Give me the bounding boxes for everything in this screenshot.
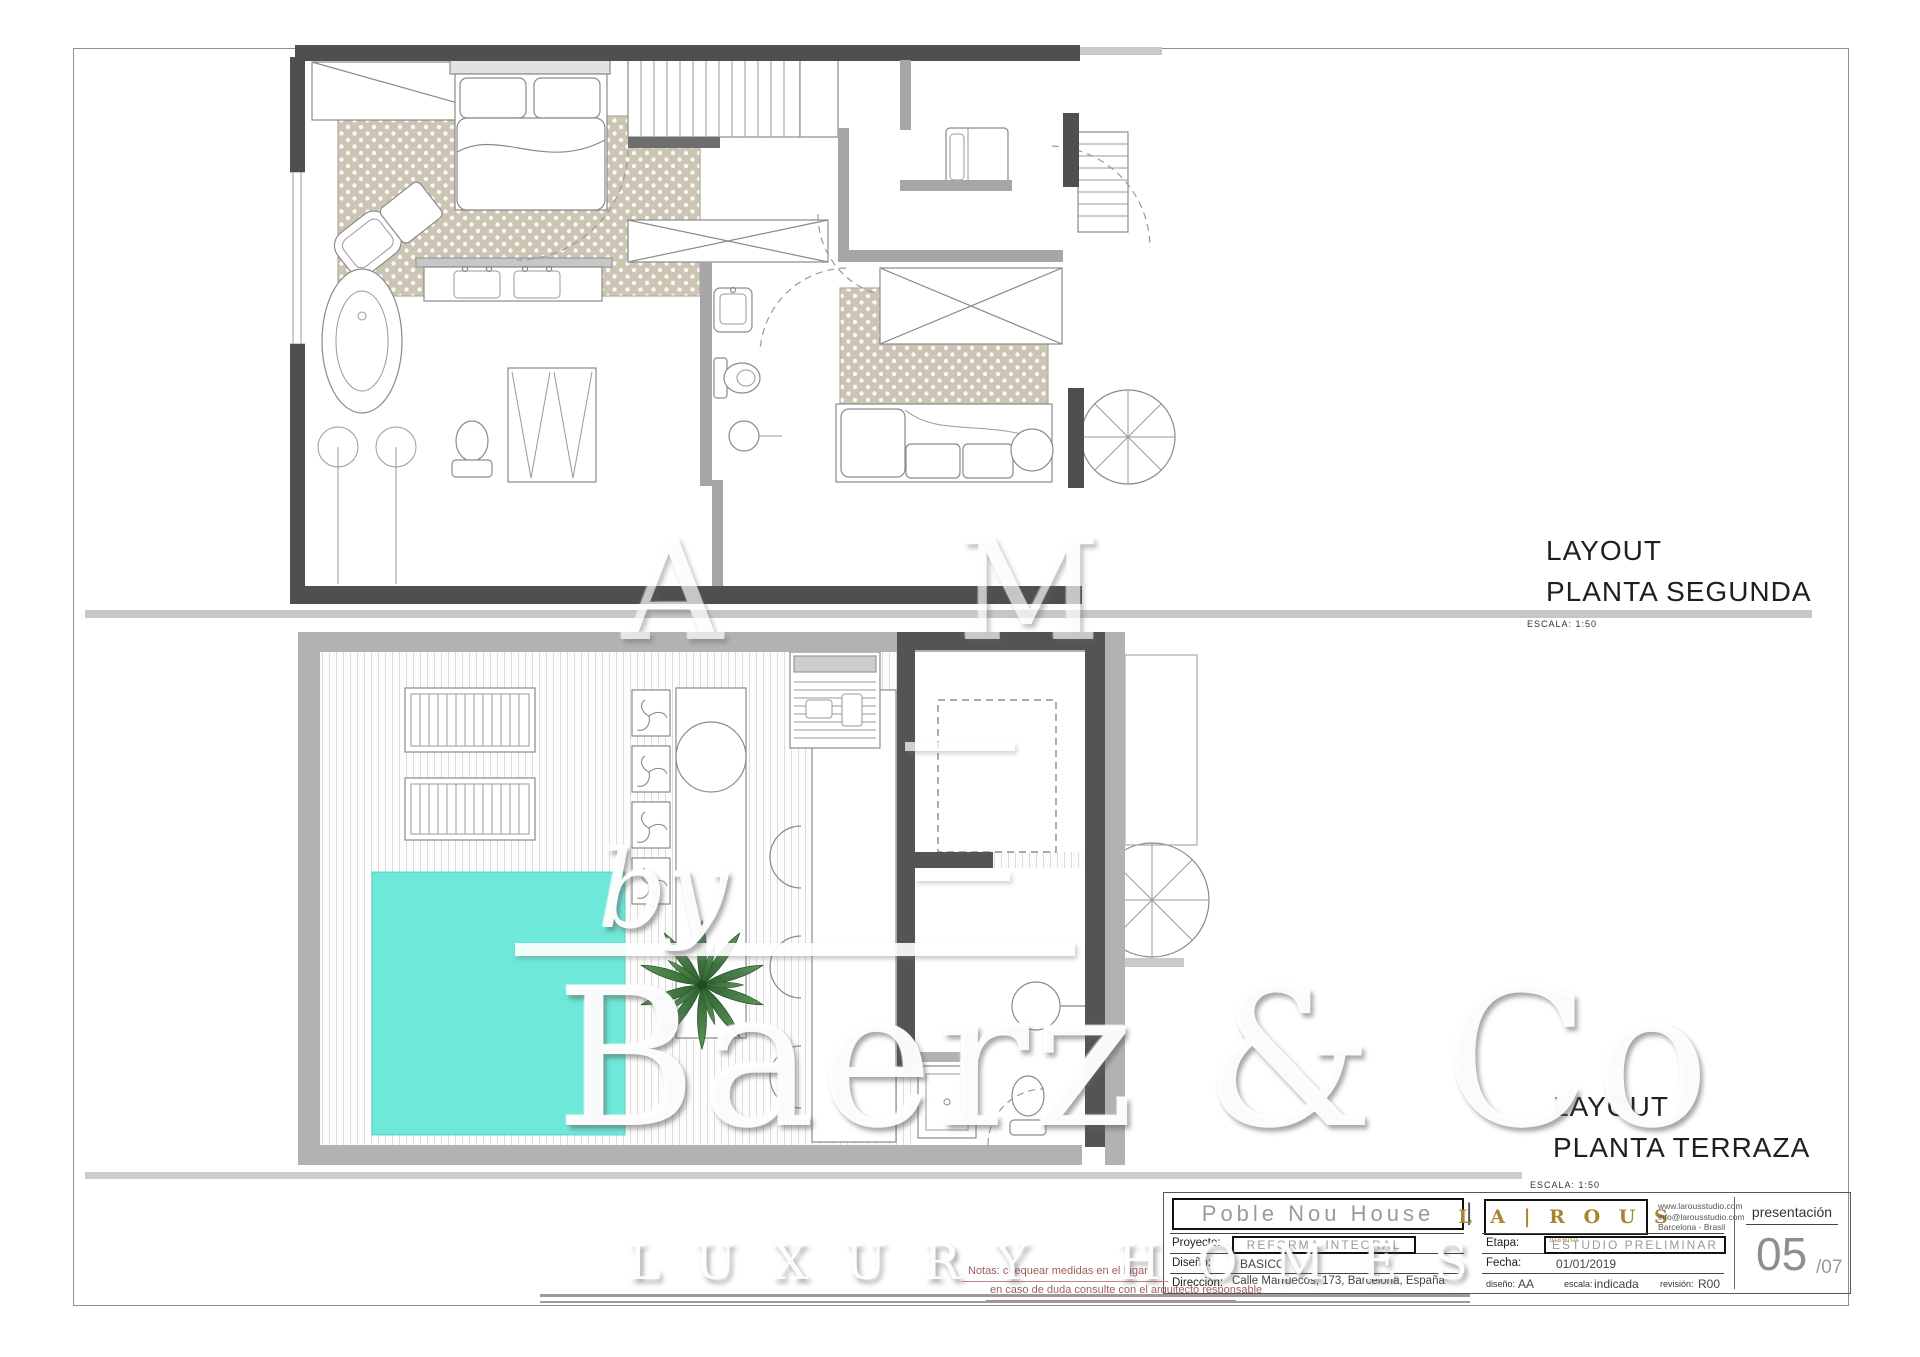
meta-value: AA [1518, 1277, 1534, 1291]
field-label: Proyecto: [1172, 1237, 1221, 1249]
plan-divider-bar [85, 1172, 1522, 1179]
meta-value: indicada [1594, 1277, 1639, 1291]
field-label: Diseño: [1172, 1257, 1211, 1269]
project-name: Poble Nou House [1172, 1198, 1464, 1230]
title-block-separator [1734, 1197, 1735, 1289]
field-label: Fecha: [1486, 1257, 1521, 1269]
toilet [452, 421, 492, 477]
sun-lounger [405, 688, 535, 752]
daybed [946, 128, 1008, 186]
watermark-bar [915, 872, 1010, 881]
master-bed [450, 60, 610, 210]
meta-label: diseño: [1486, 1279, 1515, 1289]
meta-label: revisión: [1660, 1279, 1694, 1289]
contact-city: Barcelona - Brasil [1658, 1222, 1745, 1233]
watermark-rule [540, 1294, 1470, 1297]
bathtub [322, 269, 402, 413]
watermark-bar [905, 742, 1015, 751]
ladder-stair [1078, 132, 1128, 232]
wardrobe [508, 368, 596, 482]
spiral-staircase [1081, 390, 1175, 484]
window [290, 172, 305, 344]
plan-segunda-drawing [290, 45, 1175, 604]
field-label: Etapa: [1486, 1237, 1519, 1249]
sheet-type: presentación [1742, 1204, 1842, 1220]
meta-label: escala: [1564, 1279, 1593, 1289]
field-value-proyecto: REFORMA INTEGRAL [1232, 1236, 1416, 1254]
pool [372, 872, 625, 1135]
field-value-diseno: BASICO [1240, 1257, 1285, 1271]
plan-subtitle: PLANTA TERRAZA [1553, 1127, 1810, 1168]
plan-segunda-label: LAYOUT PLANTA SEGUNDA [1546, 530, 1812, 612]
plan-terraza-scale: ESCALA: 1:50 [1530, 1180, 1600, 1190]
meta-value: R00 [1698, 1277, 1720, 1291]
plan-segunda-scale: ESCALA: 1:50 [1527, 619, 1597, 629]
sheet-total: /07 [1816, 1257, 1842, 1279]
field-value-direccion: Calle Marruecos, 173, Barcelona, España [1232, 1275, 1445, 1287]
plan-subtitle: PLANTA SEGUNDA [1546, 571, 1812, 612]
plan-terraza-drawing [298, 632, 1209, 1165]
plan-title: LAYOUT [1546, 530, 1812, 571]
contact-email: info@larousstudio.com [1658, 1212, 1745, 1223]
watermark-bar [515, 943, 1075, 956]
neighbor-wall [1080, 47, 1162, 55]
sun-lounger [405, 778, 535, 840]
field-value-etapa: ESTUDIO PRELIMINAR [1544, 1236, 1726, 1254]
planter-outline [1125, 655, 1197, 845]
title-block: Poble Nou House | L A | R O U S diseño w… [1163, 1192, 1851, 1294]
bbq-grill [790, 652, 880, 748]
plan-title: LAYOUT [1553, 1086, 1810, 1127]
wardrobe-x [880, 268, 1062, 344]
floor-lamps [318, 427, 416, 584]
watermark-rule [540, 1301, 1470, 1303]
studio-contact: www.larousstudio.com info@larousstudio.c… [1658, 1201, 1745, 1233]
double-vanity [416, 258, 612, 301]
drawing-sheet: LAYOUT PLANTA SEGUNDA ESCALA: 1:50 LAYOU… [0, 0, 1920, 1357]
larous-logo: L A | R O U S [1484, 1199, 1648, 1235]
stair-room-floor [915, 650, 1085, 852]
note-line-1: Notas: chequear medidas en el lugar [968, 1265, 1148, 1277]
sheet-number: 05 [1756, 1227, 1807, 1281]
staircase [628, 55, 838, 137]
bed-2 [836, 404, 1053, 482]
field-value-fecha: 01/01/2019 [1556, 1257, 1616, 1271]
contact-web: www.larousstudio.com [1658, 1201, 1745, 1212]
plan-terraza-label: LAYOUT PLANTA TERRAZA [1553, 1086, 1810, 1168]
corridor-closet [628, 220, 828, 262]
stair-wall [628, 137, 720, 148]
